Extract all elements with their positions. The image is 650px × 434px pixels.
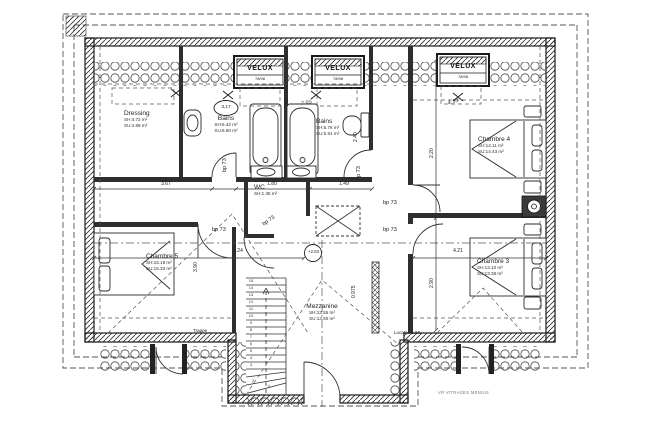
dim-mezzanine: 0.975 bbox=[352, 285, 358, 298]
dim-bains-width: 1.80 bbox=[258, 182, 286, 188]
dim-chambre3-depth: 2.90 bbox=[430, 278, 436, 288]
velux-label: VELUX bbox=[314, 65, 362, 73]
velux-size: 78/98 bbox=[439, 75, 487, 80]
trappe-label: Trappe bbox=[193, 328, 207, 333]
stair-step-number: 2 bbox=[248, 379, 258, 384]
stair-step-number: 14 bbox=[246, 286, 256, 291]
dim-bains2-width: 1.49 bbox=[330, 182, 358, 188]
stair-step-number: 11 bbox=[246, 307, 256, 312]
stair-step-number: 6 bbox=[246, 342, 256, 347]
door-label: bp 73 bbox=[222, 158, 228, 172]
mezzanine-railing bbox=[372, 262, 379, 333]
room-label-mezzanine: Mezzanine SH:13.55 m² SU:13.60 m² bbox=[292, 303, 352, 321]
dim-bains-depth: 2.40 bbox=[354, 132, 360, 142]
drawing-note: VR VITRAGES MENUIS bbox=[438, 391, 489, 396]
floor-plan: Dressing SH:4.72 m² SU:4.89 m² Bains SH:… bbox=[0, 0, 650, 434]
height-value-circled: 3,17 bbox=[214, 105, 238, 111]
stair-step-number: 8 bbox=[246, 328, 256, 333]
door-label: bp 73 bbox=[383, 200, 397, 206]
door-label: bp 73 bbox=[212, 227, 226, 233]
dim-chambre4-depth: 2.20 bbox=[430, 148, 436, 158]
velux-label: VELUX bbox=[236, 65, 284, 73]
flue-block bbox=[522, 196, 546, 217]
stair-step-number: 4 bbox=[246, 356, 256, 361]
room-area-su: SU:4.89 m² bbox=[124, 123, 194, 128]
stair-step-number: 1 bbox=[264, 384, 274, 389]
velux-size: 78/98 bbox=[236, 77, 284, 82]
exterior-walls bbox=[85, 38, 555, 403]
room-name: Chambre 3 bbox=[477, 258, 533, 265]
room-label-chambre-4: Chambre 4 SH:14.11 m² SU:14.43 m² bbox=[478, 136, 532, 154]
room-area-su: SU:13.38 m² bbox=[477, 271, 533, 276]
lucarne-label: Lucarne 1.50 bbox=[394, 330, 420, 335]
room-area-su: SU:14.43 m² bbox=[478, 149, 532, 154]
room-name: Bains bbox=[316, 118, 360, 125]
level-marker-value: +2.03 bbox=[304, 250, 323, 255]
chimney-duct bbox=[316, 206, 360, 236]
room-label-dressing: Dressing SH:4.72 m² SU:4.89 m² bbox=[124, 110, 194, 128]
room-label-chambre-3: Chambre 3 SH:13.10 m² SU:13.38 m² bbox=[477, 258, 533, 276]
stair-step-number: 12 bbox=[246, 300, 256, 305]
room-area-su: SU:6.80 m² bbox=[204, 128, 248, 133]
velux-label: VELUX bbox=[439, 63, 487, 71]
stair-step-number: 3 bbox=[246, 363, 256, 368]
stair-step-number: 15 bbox=[246, 279, 256, 284]
room-name: Dressing bbox=[124, 110, 194, 117]
corner-chimney-block bbox=[66, 16, 86, 36]
stair-step-number: 5 bbox=[246, 349, 256, 354]
velux-size: 78/98 bbox=[314, 77, 362, 82]
room-name: Bains bbox=[204, 115, 248, 122]
stair-step-number: 9 bbox=[246, 321, 256, 326]
stair-step-number: 7 bbox=[246, 335, 256, 340]
dim-hall-width: 3.24 bbox=[224, 249, 252, 255]
door-label: bp 73 bbox=[383, 227, 397, 233]
room-name: Mezzanine bbox=[292, 303, 352, 310]
room-label-bains-1: Bains SH:6.42 m² SU:6.80 m² bbox=[204, 115, 248, 133]
room-name: Chambre 4 bbox=[478, 136, 532, 143]
dim-chambre5-depth: 3.90 bbox=[194, 262, 200, 272]
room-name: Chambre 5 bbox=[146, 253, 204, 260]
stair-step-number: 13 bbox=[246, 293, 256, 298]
dim-chambre3-width: 4.21 bbox=[444, 249, 472, 255]
room-area-su: SU:13.60 m² bbox=[292, 316, 352, 321]
door-label: bp 73 bbox=[356, 166, 362, 180]
stair-step-number: 10 bbox=[246, 314, 256, 319]
room-area-sh: SH:1.35 m² bbox=[254, 191, 294, 196]
dim-dressing-width: 3.67 bbox=[152, 182, 180, 188]
